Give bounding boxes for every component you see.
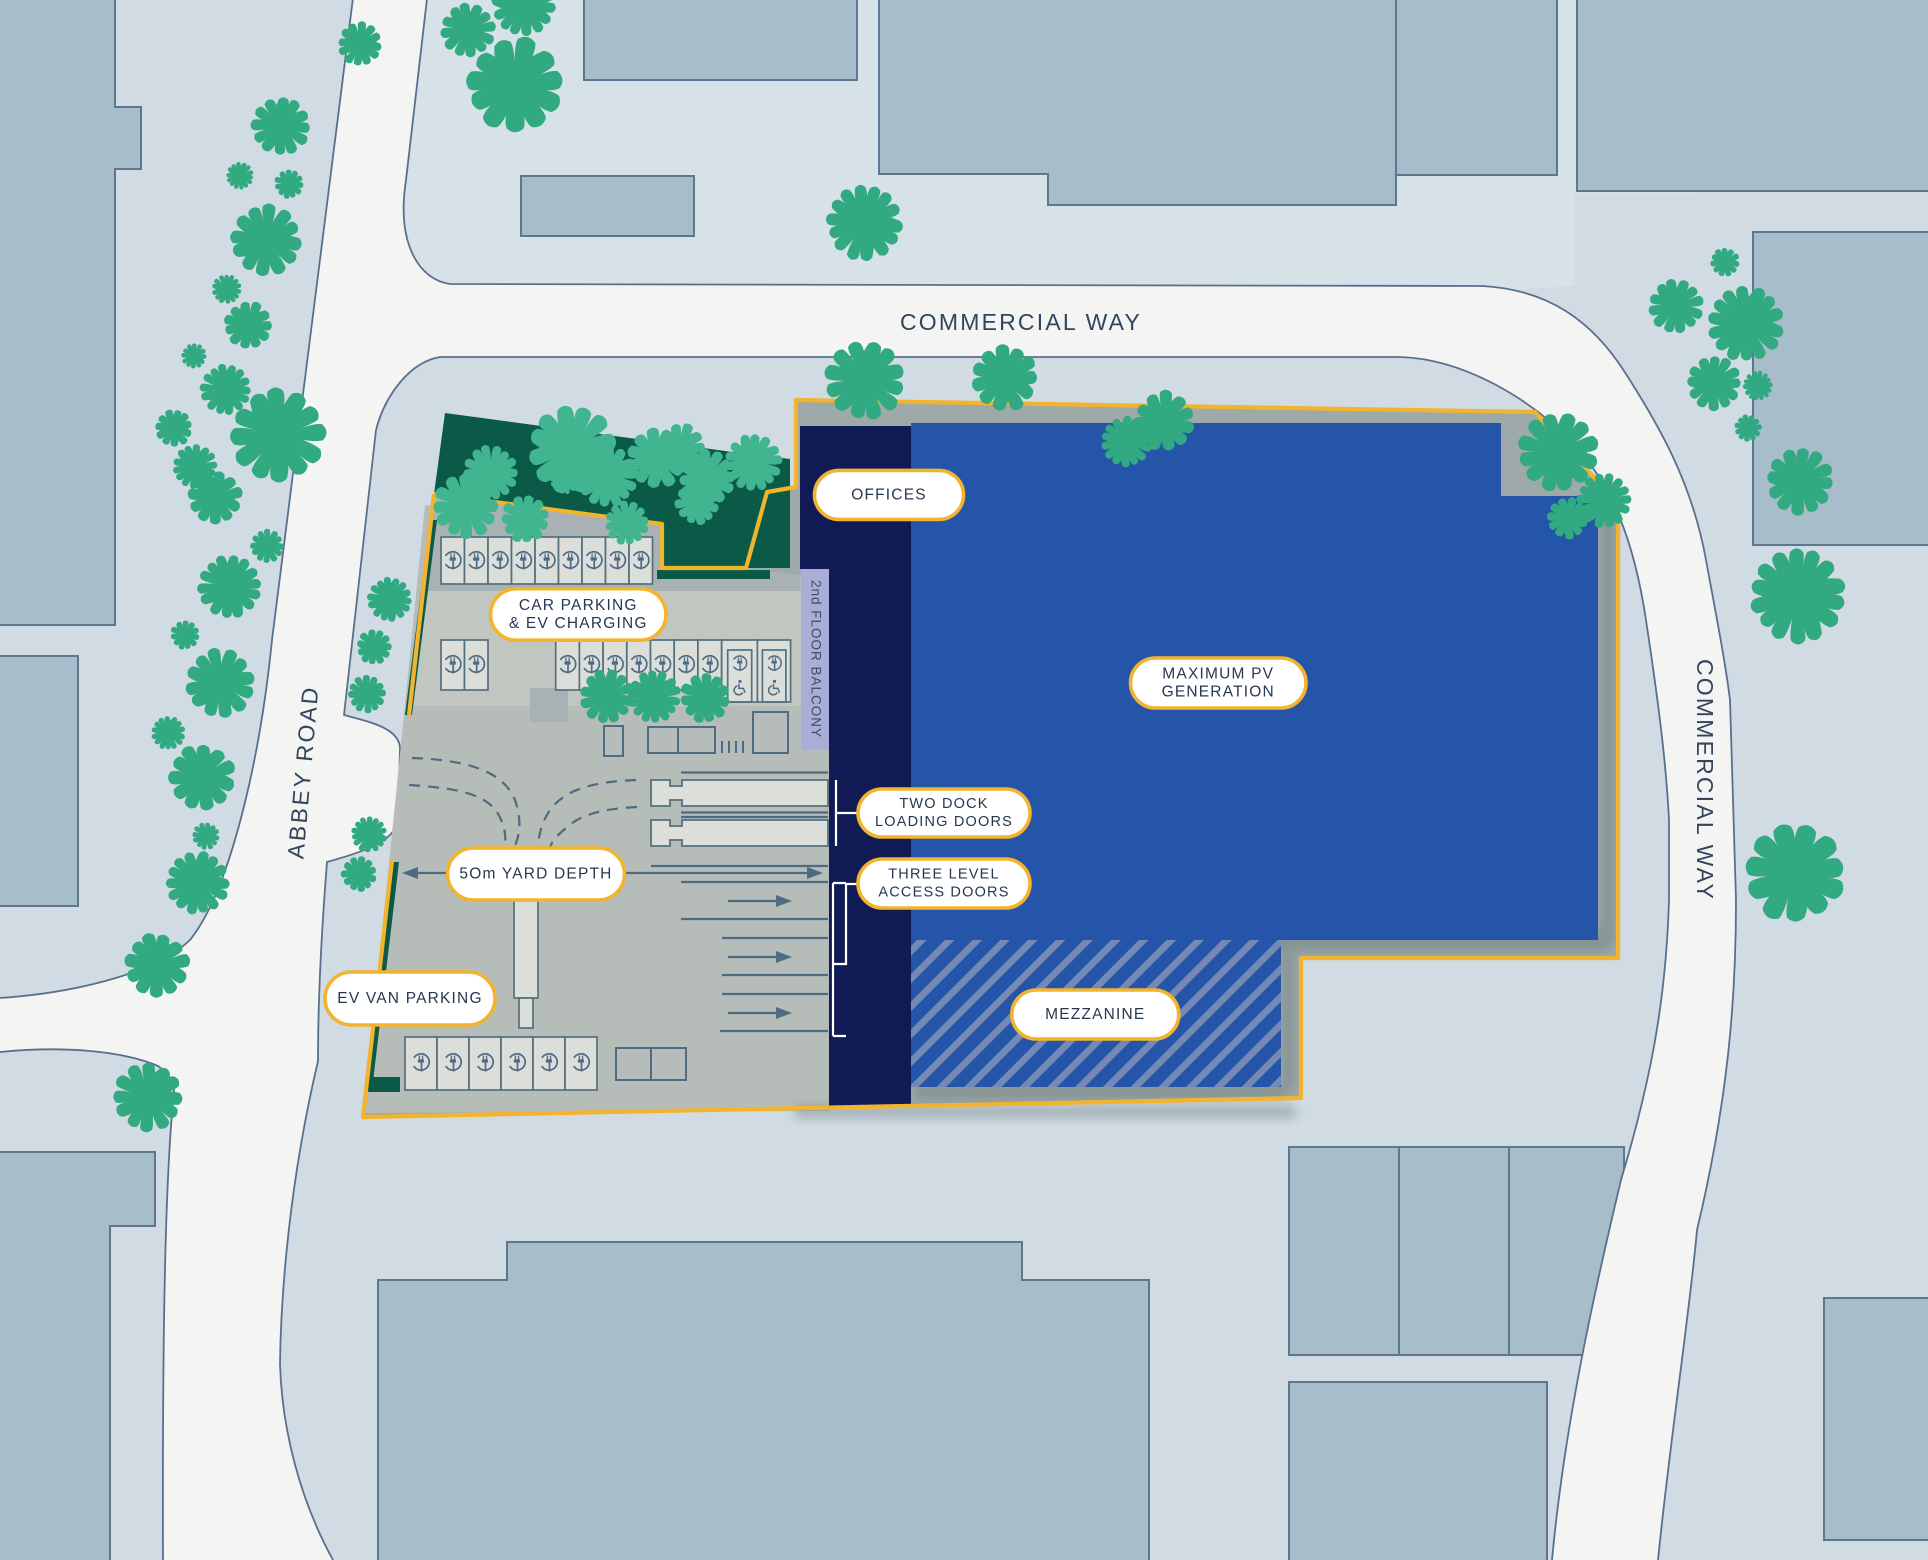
svg-text:EV VAN PARKING: EV VAN PARKING — [337, 990, 482, 1007]
svg-text:GENERATION: GENERATION — [1162, 684, 1275, 701]
svg-text:MAXIMUM PV: MAXIMUM PV — [1162, 666, 1274, 683]
svg-text:2nd FLOOR BALCONY: 2nd FLOOR BALCONY — [808, 580, 823, 738]
svg-text:LOADING DOORS: LOADING DOORS — [875, 814, 1013, 830]
svg-text:5Om YARD DEPTH: 5Om YARD DEPTH — [459, 866, 612, 883]
svg-text:COMMERCIAL WAY: COMMERCIAL WAY — [1692, 659, 1718, 901]
svg-text:OFFICES: OFFICES — [851, 486, 927, 503]
svg-text:MEZZANINE: MEZZANINE — [1045, 1006, 1145, 1023]
svg-text:& EV CHARGING: & EV CHARGING — [509, 615, 648, 632]
svg-text:CAR PARKING: CAR PARKING — [519, 597, 638, 614]
svg-text:THREE LEVEL: THREE LEVEL — [888, 867, 1000, 883]
svg-text:TWO DOCK: TWO DOCK — [899, 796, 988, 812]
svg-text:COMMERCIAL WAY: COMMERCIAL WAY — [900, 309, 1142, 335]
svg-text:ACCESS DOORS: ACCESS DOORS — [878, 885, 1009, 901]
